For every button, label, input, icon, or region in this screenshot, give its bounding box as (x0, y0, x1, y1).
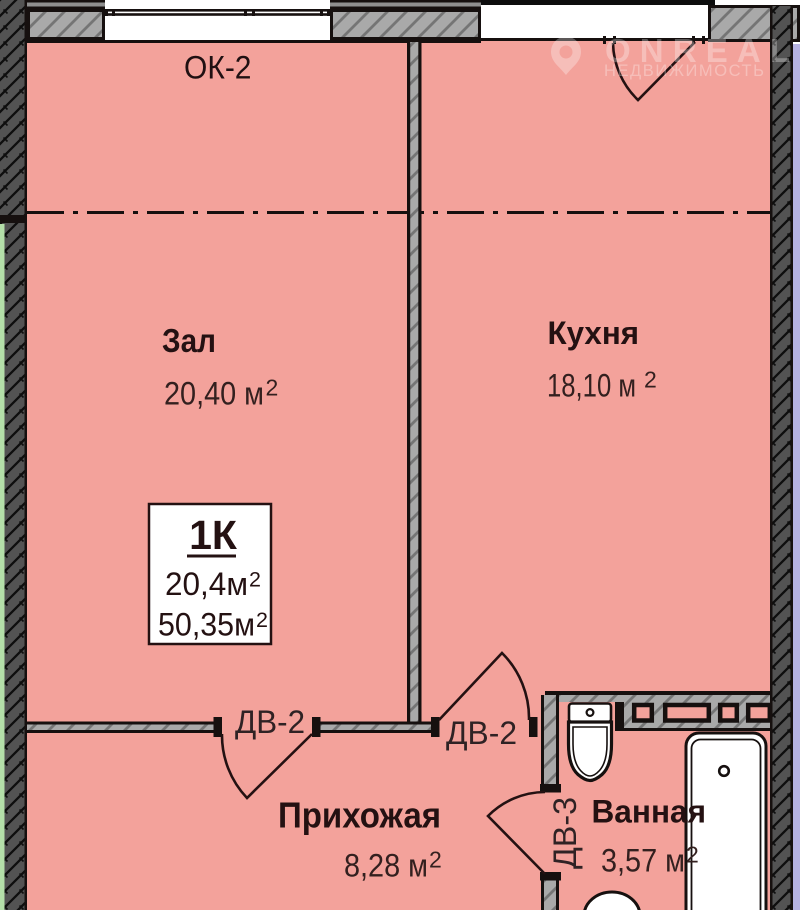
svg-text:3,57 м: 3,57 м (601, 843, 685, 879)
svg-text:20,40 м: 20,40 м (164, 376, 264, 412)
svg-text:2: 2 (686, 842, 699, 868)
svg-text:ДВ-2: ДВ-2 (446, 715, 517, 751)
svg-text:18,10 м: 18,10 м (547, 368, 636, 404)
svg-text:Зал: Зал (162, 322, 216, 359)
svg-text:1К: 1К (189, 512, 238, 558)
svg-text:ДВ-2: ДВ-2 (235, 704, 305, 740)
svg-text:2: 2 (256, 608, 268, 632)
svg-text:Кухня: Кухня (548, 315, 640, 351)
svg-text:2: 2 (644, 367, 657, 393)
svg-text:2: 2 (429, 847, 442, 873)
svg-text:8,28 м: 8,28 м (344, 848, 428, 884)
svg-text:20,4м: 20,4м (165, 566, 248, 602)
svg-text:50,35м: 50,35м (158, 607, 255, 643)
svg-text:Прихожая: Прихожая (278, 795, 441, 836)
svg-text:ДВ-3: ДВ-3 (547, 797, 583, 869)
svg-text:2: 2 (266, 375, 279, 401)
svg-text:2: 2 (249, 568, 261, 592)
svg-text:Ванная: Ванная (592, 794, 707, 830)
svg-text:ОК-2: ОК-2 (184, 50, 252, 86)
